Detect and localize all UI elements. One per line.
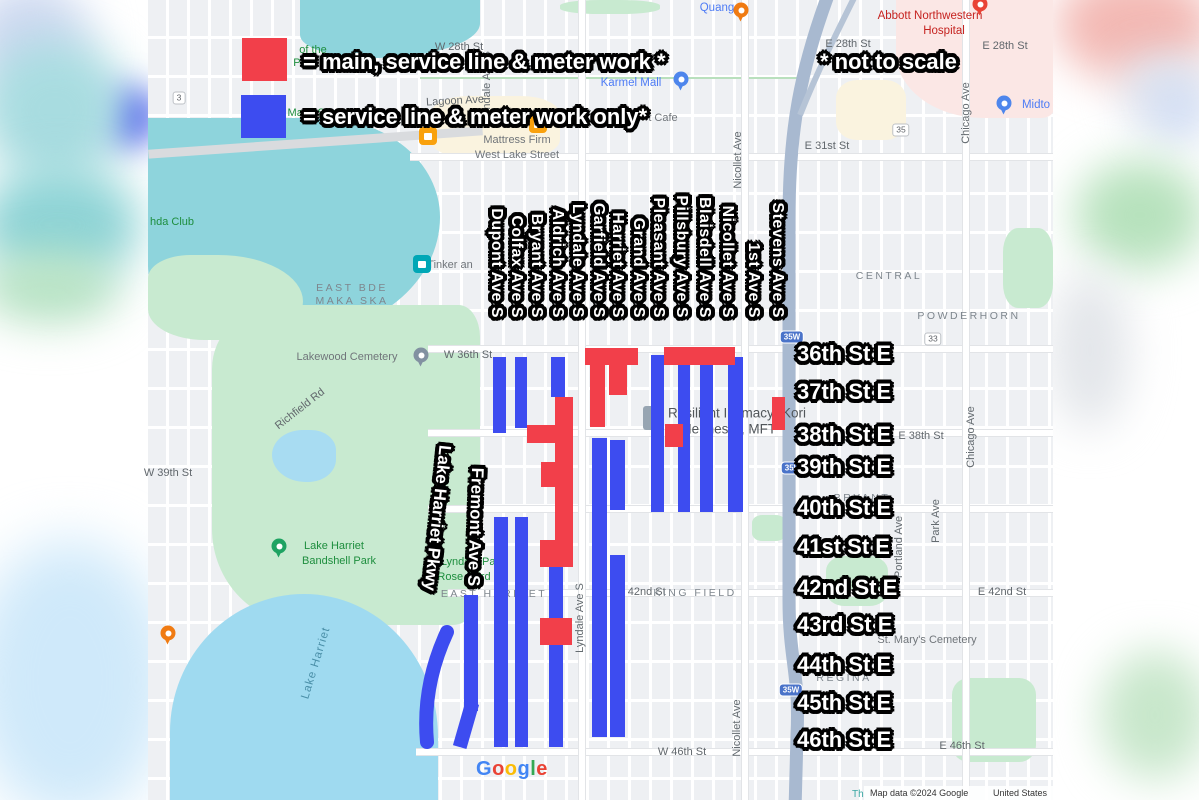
country-text[interactable]: United States bbox=[993, 788, 1047, 798]
annotation-overlay: W 28th StE 28th StE 28th StLagoon AveE 3… bbox=[0, 0, 1199, 800]
lake-harriet-pkwy-work-arc bbox=[0, 0, 1199, 800]
google-logo-letter: o bbox=[492, 758, 505, 780]
map-attribution: Map data ©2024 Google United States bbox=[864, 786, 1053, 800]
google-logo-letter: e bbox=[536, 758, 548, 780]
work-arc-path bbox=[426, 632, 447, 742]
map-data-text: Map data ©2024 Google bbox=[870, 788, 968, 798]
google-logo[interactable]: Google bbox=[476, 758, 548, 781]
google-logo-letter: G bbox=[476, 758, 492, 780]
google-logo-letter: o bbox=[505, 758, 518, 780]
google-logo-letter: g bbox=[518, 758, 531, 780]
attribution-partial-text: Th bbox=[852, 789, 864, 800]
screenshot-root: W 28th StE 28th StE 28th StLagoon AveE 3… bbox=[0, 0, 1199, 800]
